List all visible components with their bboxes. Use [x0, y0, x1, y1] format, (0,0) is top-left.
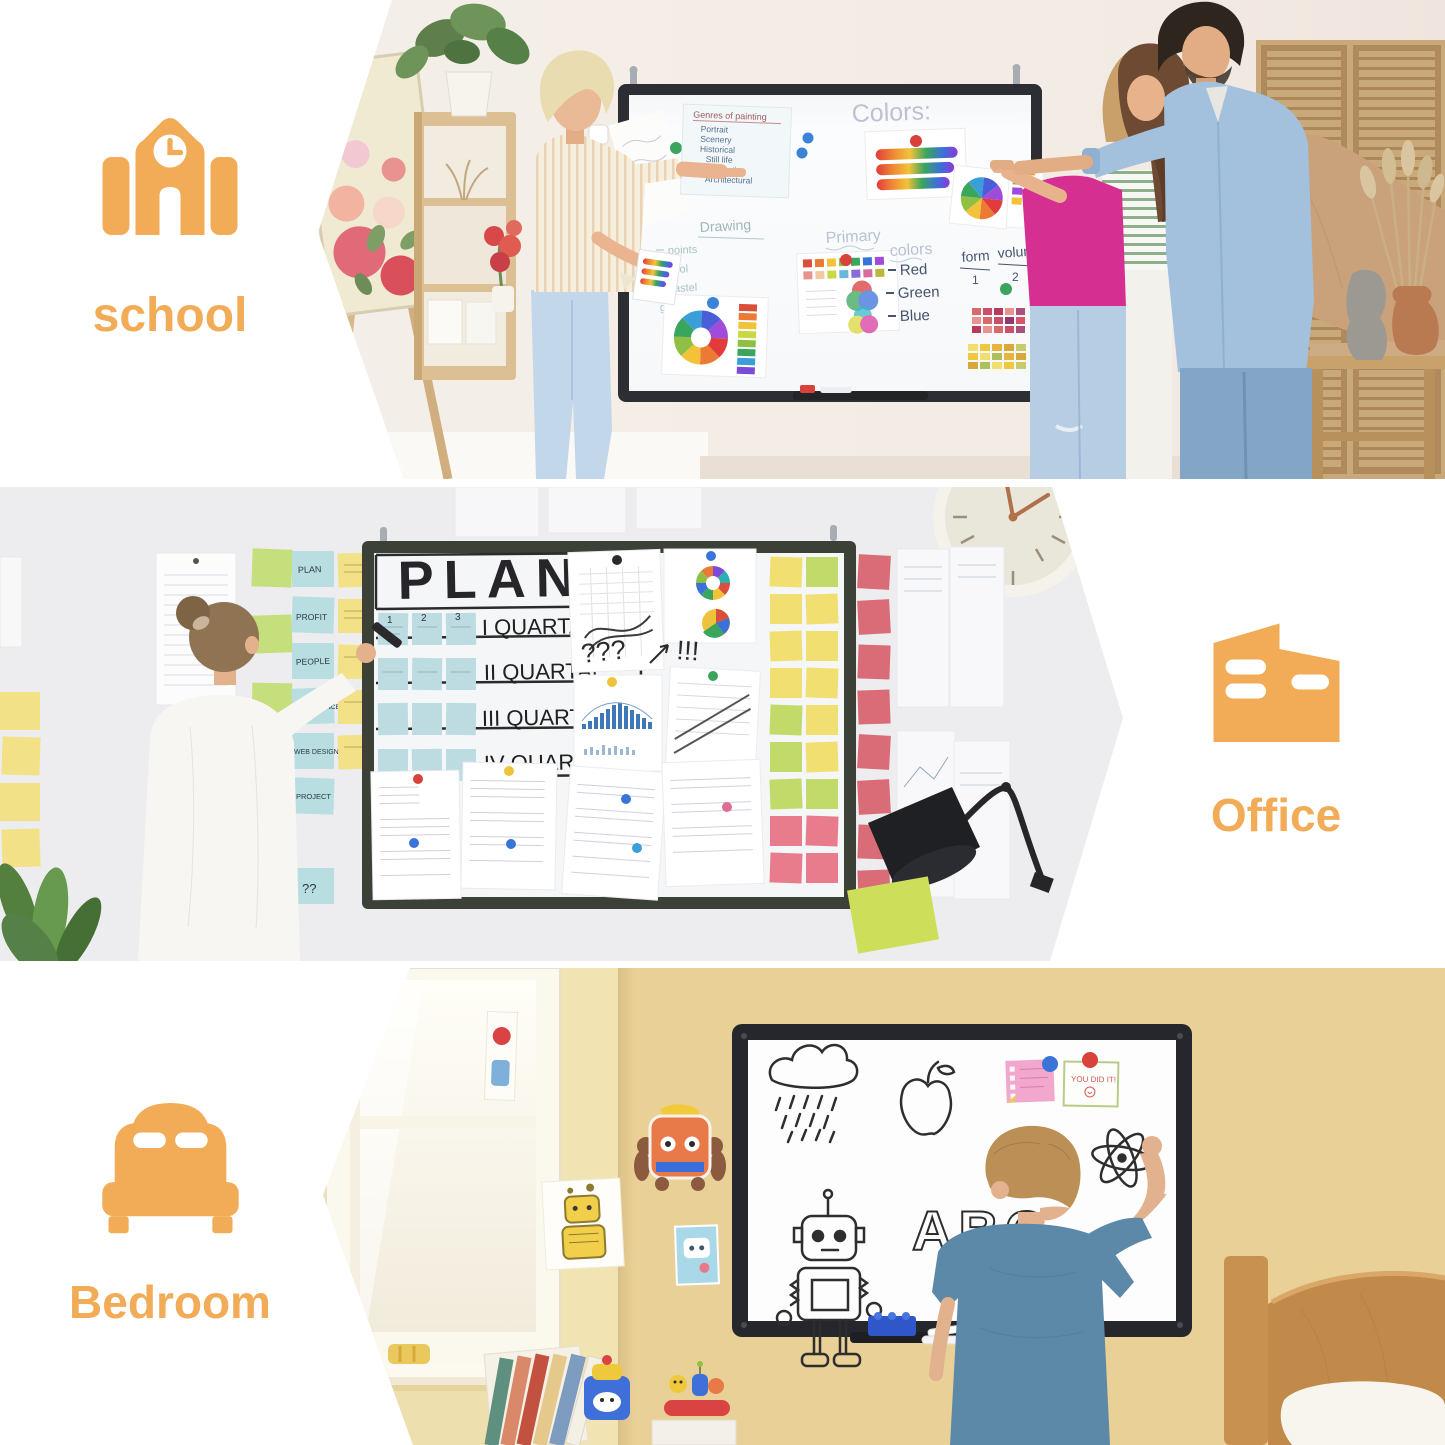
swatch-grid-yellow — [968, 344, 1026, 369]
magnet-blue — [409, 838, 419, 848]
wall-papers-top — [455, 487, 702, 537]
magnet-blue — [797, 148, 808, 159]
bedroom-label: Bedroom — [69, 1279, 271, 1325]
office-building-icon — [1199, 598, 1354, 748]
magnet-blue — [632, 843, 642, 853]
bar-chart-paper — [574, 675, 662, 771]
eraser — [800, 385, 815, 393]
bottom-paper-4 — [662, 759, 764, 886]
white-sticky-note: YOU DID IT! — [1064, 1062, 1119, 1107]
woman-shirt — [138, 695, 300, 961]
svg-text:PROFIT: PROFIT — [296, 612, 327, 622]
svg-text:3: 3 — [455, 612, 461, 623]
swatch-grid-pink — [972, 308, 1025, 333]
svg-text:PEOPLE: PEOPLE — [296, 656, 331, 667]
bed — [1224, 1256, 1445, 1445]
tall-card-poster — [484, 1012, 517, 1101]
bottom-paper-2 — [461, 762, 557, 890]
question-marks: ??? — [579, 634, 627, 669]
woman-hand — [356, 643, 376, 663]
boy-hand — [1142, 1136, 1162, 1156]
donut-chart — [696, 566, 730, 600]
magnet-red — [840, 254, 852, 266]
yellow-robot-drawing — [542, 1178, 624, 1270]
teacher-pointing-hand — [722, 168, 746, 177]
genres-paper: Genres of painting Portrait Scenery Hist… — [680, 104, 791, 198]
toy-on-sill — [388, 1344, 430, 1364]
svg-text:Primary: Primary — [825, 227, 881, 247]
svg-text:WEB DESIGN: WEB DESIGN — [294, 749, 339, 756]
product-usage-collage: Colors: Genres of painting Portrait Scen… — [0, 0, 1445, 1445]
boy-ear — [991, 1181, 1009, 1199]
storage-box — [428, 300, 462, 344]
magnet-blue — [1042, 1056, 1058, 1072]
storage-box — [466, 302, 496, 344]
magnet-black — [612, 555, 622, 565]
office-label: Office — [1211, 792, 1341, 838]
svg-text:1: 1 — [387, 615, 393, 626]
school-door — [160, 187, 181, 235]
white-box — [652, 1420, 736, 1445]
wall-paper-left-edge — [0, 557, 22, 647]
magnet-red — [910, 135, 922, 147]
svg-text:PROJECT: PROJECT — [296, 792, 331, 801]
pillow-right — [175, 1133, 208, 1149]
plan-title: PLAN — [397, 548, 585, 611]
magnet-green — [1000, 283, 1012, 295]
svg-text:PLAN: PLAN — [298, 564, 322, 575]
board-title-handwriting: Colors: — [851, 97, 931, 128]
svg-text:2: 2 — [421, 613, 427, 624]
torso-sculpture — [1346, 270, 1387, 360]
svg-text:Drawing: Drawing — [699, 216, 751, 235]
svg-text:2: 2 — [1012, 270, 1019, 284]
magnet-blue — [621, 794, 631, 804]
exclamation-marks: !!! — [676, 635, 701, 666]
magnet-blue — [706, 551, 716, 561]
svg-text:??: ?? — [302, 881, 316, 896]
man-forearm — [1020, 162, 1086, 168]
bed-icon — [88, 1086, 253, 1241]
magnet-green — [708, 671, 718, 681]
marker — [820, 387, 852, 393]
pillow — [1281, 1381, 1445, 1445]
magnet-red — [413, 774, 423, 784]
svg-text:form: form — [961, 247, 990, 265]
magnet-blue — [803, 133, 814, 144]
svg-text:YOU DID IT!: YOU DID IT! — [1071, 1075, 1116, 1085]
pie-charts-paper — [664, 549, 756, 643]
teacher-shirt — [534, 134, 645, 292]
bottom-paper-3 — [562, 766, 667, 900]
student1-face — [1127, 75, 1165, 121]
bedroom-label-block: Bedroom — [52, 1086, 288, 1325]
student1-magenta-top — [1022, 176, 1126, 308]
school-label: school — [93, 292, 248, 340]
svg-text:1: 1 — [972, 273, 979, 287]
school-whiteboard: Colors: Genres of painting Portrait Scen… — [608, 64, 1044, 402]
magnet-yellow — [504, 766, 514, 776]
svg-text:Green: Green — [898, 284, 940, 302]
svg-text:Blue: Blue — [900, 307, 931, 325]
office-label-block: Office — [1148, 598, 1404, 838]
school-building-icon — [95, 100, 245, 250]
office-whiteboard: PLAN 1 2 3 I QUARTAL II — [362, 525, 856, 909]
magnet-blue — [707, 297, 719, 309]
man-pointing-hand — [990, 160, 1014, 170]
pillow-left — [133, 1133, 166, 1149]
bottom-paper-1 — [371, 770, 461, 900]
magnet-blue — [506, 839, 516, 849]
slashed-table-paper — [665, 667, 760, 770]
magnet-red — [1082, 1052, 1098, 1068]
magnet-yellow — [607, 677, 617, 687]
svg-text:Red: Red — [900, 261, 928, 279]
woman-ear — [245, 636, 259, 654]
blue-robot-card — [675, 1225, 719, 1284]
school-label-block: school — [60, 100, 280, 340]
magnet-green — [670, 142, 682, 154]
magnet-pink — [722, 802, 732, 812]
svg-text:colors: colors — [889, 241, 933, 260]
gradient-card — [633, 249, 682, 304]
white-desk — [318, 432, 708, 479]
